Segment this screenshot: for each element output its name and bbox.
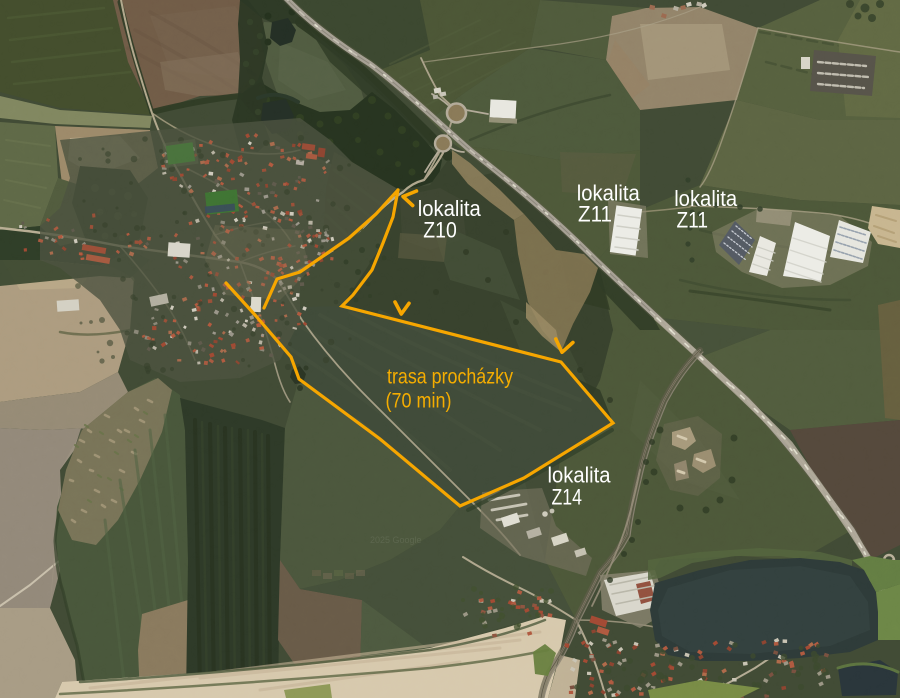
svg-text:trasa procházky: trasa procházky [387,366,513,389]
svg-text:Z14: Z14 [552,484,583,509]
svg-text:Z11: Z11 [677,208,709,233]
svg-text:(70 min): (70 min) [386,390,452,413]
svg-text:Z10: Z10 [423,217,457,242]
svg-text:Z11: Z11 [578,202,612,227]
